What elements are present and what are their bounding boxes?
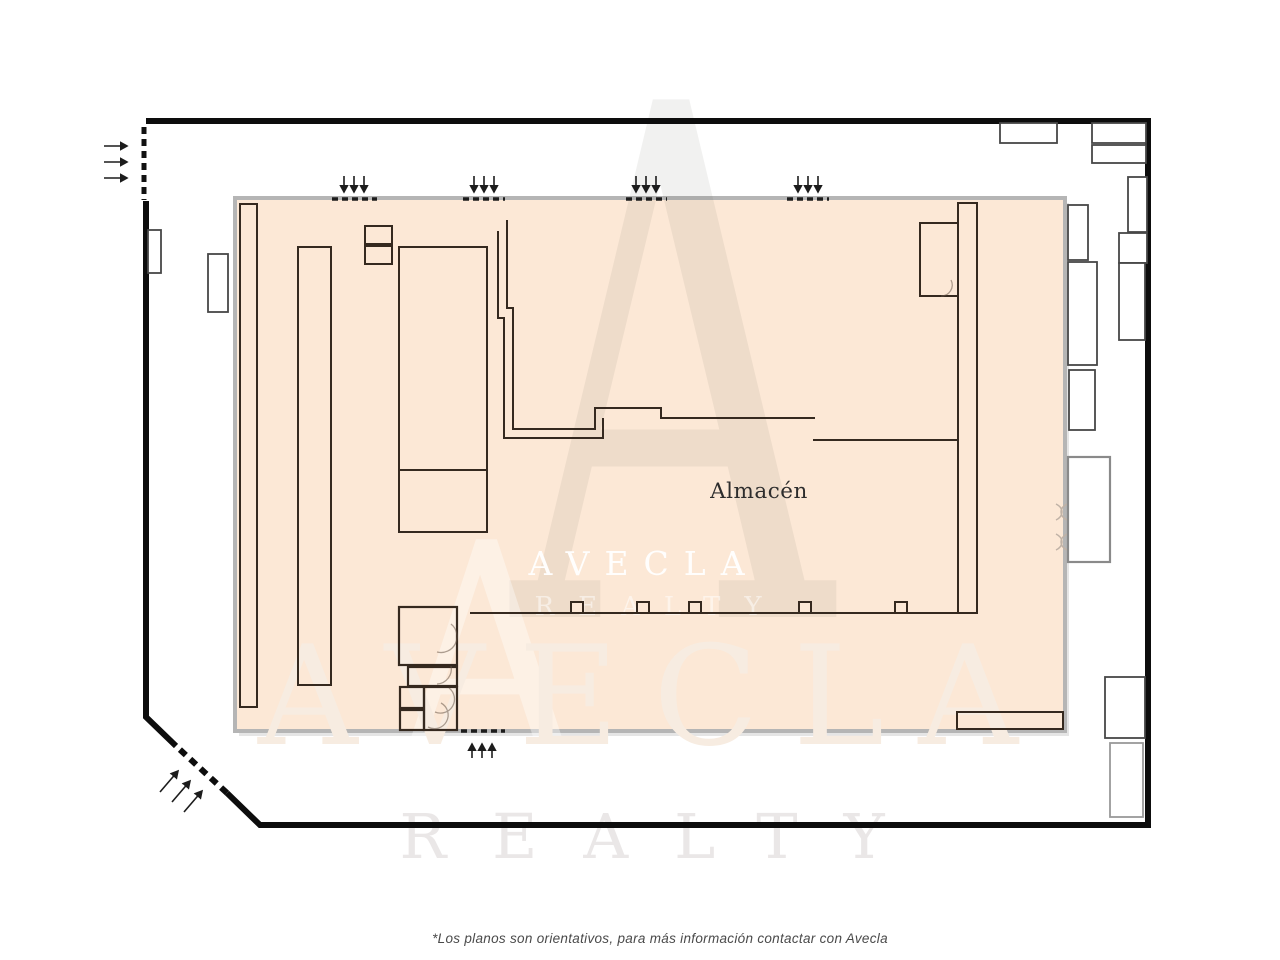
room-label-almacen: Almacén: [710, 479, 808, 504]
warehouse-racking: [240, 203, 1063, 729]
gate-opening-diagonal: [176, 746, 227, 793]
loading-door-arrows-top: [344, 176, 818, 192]
right-edge-door-marks: [1056, 504, 1067, 550]
floor-linework-layer: [0, 0, 1280, 960]
annex-structure-bottom: [1110, 743, 1143, 817]
door-swing-arcs: [428, 280, 952, 729]
entry-arrows-diagonal: [160, 771, 202, 812]
loading-door-arrows-bottom: [472, 744, 492, 758]
interior-partition-walls: [470, 220, 977, 613]
partition-column-tabs: [571, 602, 907, 613]
outer-wall: [146, 121, 1148, 825]
annex-structure-gray: [1068, 457, 1110, 562]
floor-plan-page: A A AVECLA REALTY AVECLA REALTY: [0, 0, 1280, 960]
entry-arrows-left: [104, 146, 127, 178]
disclaimer-footnote: *Los planos son orientativos, para más i…: [432, 931, 888, 946]
